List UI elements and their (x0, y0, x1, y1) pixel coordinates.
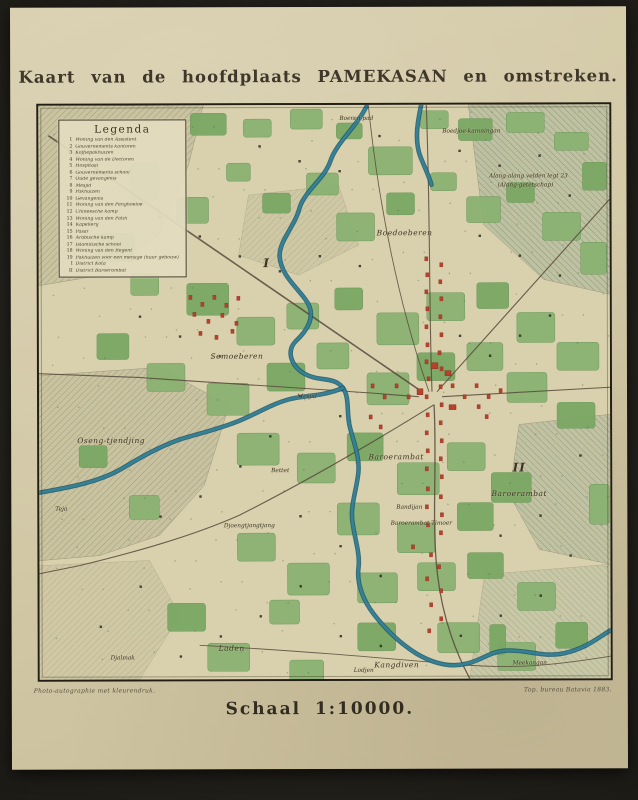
map-title: Kaart van de hoofdplaats PAMEKASAN en om… (10, 66, 626, 87)
map-label: Teja (55, 507, 67, 513)
map-label: Bettet (271, 468, 289, 474)
map-label: I (263, 256, 270, 270)
map-label: Boeren-pad (339, 116, 373, 122)
map-label: Lodjen (354, 668, 374, 674)
map-label: Kangdiven (374, 660, 419, 669)
map-label: Djalmak (111, 655, 135, 661)
map-label: (Alang-getetschap) (498, 182, 554, 188)
legend-items: 1Woning van den Assistent2Gouvernements … (64, 137, 180, 275)
map-label: II (513, 460, 526, 474)
map-label: Laden (219, 644, 245, 653)
map-label: Oseng-tjendjing (77, 436, 145, 445)
map-label: Baroerambat (368, 452, 424, 461)
imprint-left: Photo-autographie met kleurendruk. (34, 687, 156, 694)
photo-stage: Kaart van de hoofdplaats PAMEKASAN en om… (0, 0, 638, 800)
map-label: Bandijan (396, 505, 422, 511)
imprint-right: Top. bureau Batavia 1883. (524, 686, 612, 693)
map-label: Semoeberen (211, 352, 264, 361)
map-sheet-paper: Kaart van de hoofdplaats PAMEKASAN en om… (10, 6, 628, 770)
map-area: Boeren-padBoedjoe-kamninganAlang-alang v… (36, 102, 613, 682)
legend-box: Legenda 1Woning van den Assistent2Gouver… (58, 119, 186, 277)
map-label: Mesjid (297, 394, 317, 400)
legend-item: IIDistrict Baroerambat (65, 268, 181, 275)
scale-text: Schaal 1:10000. (12, 698, 628, 720)
map-label: Alang-alang velden legt 23 (489, 173, 568, 179)
legend-title: Legenda (64, 123, 180, 135)
map-label: Boedjoe-kamningan (442, 129, 500, 135)
map-label: Baroerambat Timoer (391, 521, 452, 527)
map-label: Djoengtjangtjang (224, 523, 275, 529)
map-label: Baroerambat (492, 489, 548, 498)
map-label: Meekangan (513, 660, 547, 666)
map-label: Boedoeberen (377, 228, 433, 237)
